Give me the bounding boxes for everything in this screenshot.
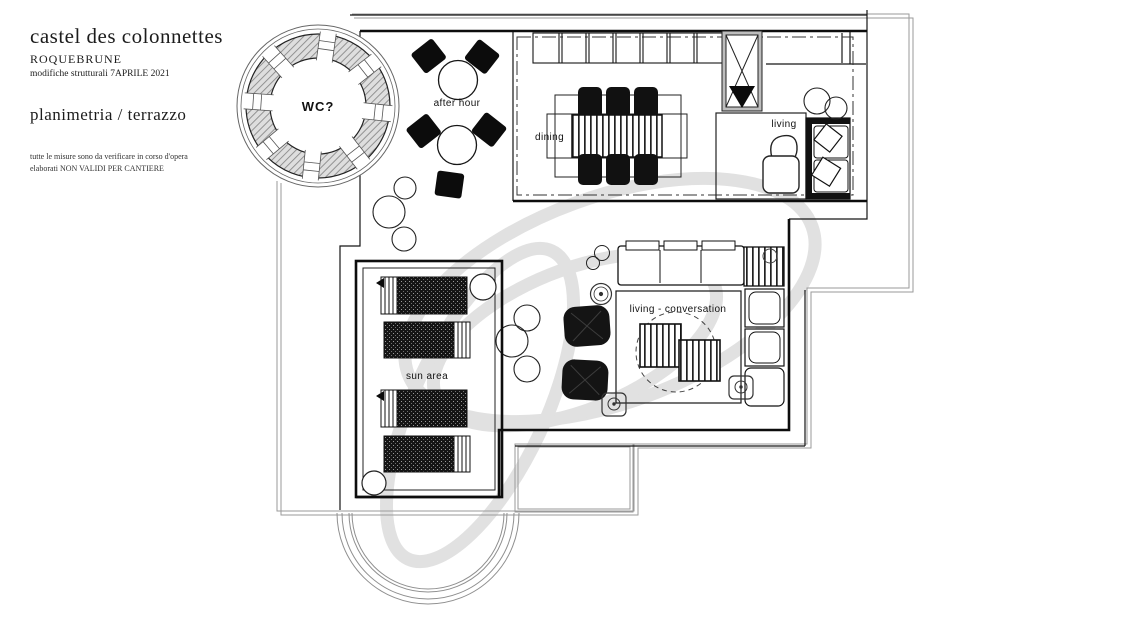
sun-area-table-top <box>470 274 496 300</box>
title-block: castel des colonnettes ROQUEBRUNE modifi… <box>30 24 223 175</box>
drawing-title: planimetria / terrazzo <box>30 105 223 125</box>
dining-table <box>572 115 662 157</box>
pergola-dashdot-outline <box>517 37 853 195</box>
sun-area: sun area <box>356 261 502 497</box>
dining-area: dining <box>535 87 687 185</box>
plant-circles-living <box>804 88 847 119</box>
dining-chairs-top <box>578 87 658 118</box>
round-side-table <box>591 284 612 305</box>
living-sofa <box>806 118 850 199</box>
label-sun-area: sun area <box>406 371 448 382</box>
round-tower: WC? <box>237 25 399 187</box>
living-coffee-table <box>763 156 799 193</box>
sun-lounger-1 <box>376 277 467 314</box>
disclaimer-line-2: elaborati NON VALIDI PER CANTIERE <box>30 163 223 175</box>
label-after-hour: after hour <box>434 98 481 109</box>
project-location: ROQUEBRUNE <box>30 52 223 67</box>
floor-plan-canvas: castel des colonnettes ROQUEBRUNE modifi… <box>0 0 1127 625</box>
shaft-symbol <box>722 31 762 111</box>
sun-lounger-2 <box>384 322 470 358</box>
label-living: living <box>771 119 796 130</box>
after-hour-table-1 <box>439 61 478 100</box>
disclaimer-line-1: tutte le misure sono da verificare in co… <box>30 151 223 163</box>
label-wc: WC? <box>302 99 335 114</box>
label-dining: dining <box>535 132 564 143</box>
conversation-sofa-right <box>745 289 784 406</box>
disclaimer: tutte le misure sono da verificare in co… <box>30 151 223 175</box>
label-living-conversation: living - conversation <box>630 304 727 315</box>
sun-lounger-3 <box>376 390 467 427</box>
revision-note: modifiche strutturali 7APRILE 2021 <box>30 69 223 79</box>
after-hour-table-2 <box>438 126 477 165</box>
after-hour-area: after hour <box>405 38 507 199</box>
conversation-sofa-top <box>618 241 744 285</box>
dining-chairs-bottom <box>578 154 658 185</box>
sun-area-table-bottom <box>362 471 386 495</box>
sun-lounger-4 <box>384 436 470 472</box>
project-title: castel des colonnettes <box>30 24 223 49</box>
plant-cluster-afterhour <box>373 177 416 251</box>
